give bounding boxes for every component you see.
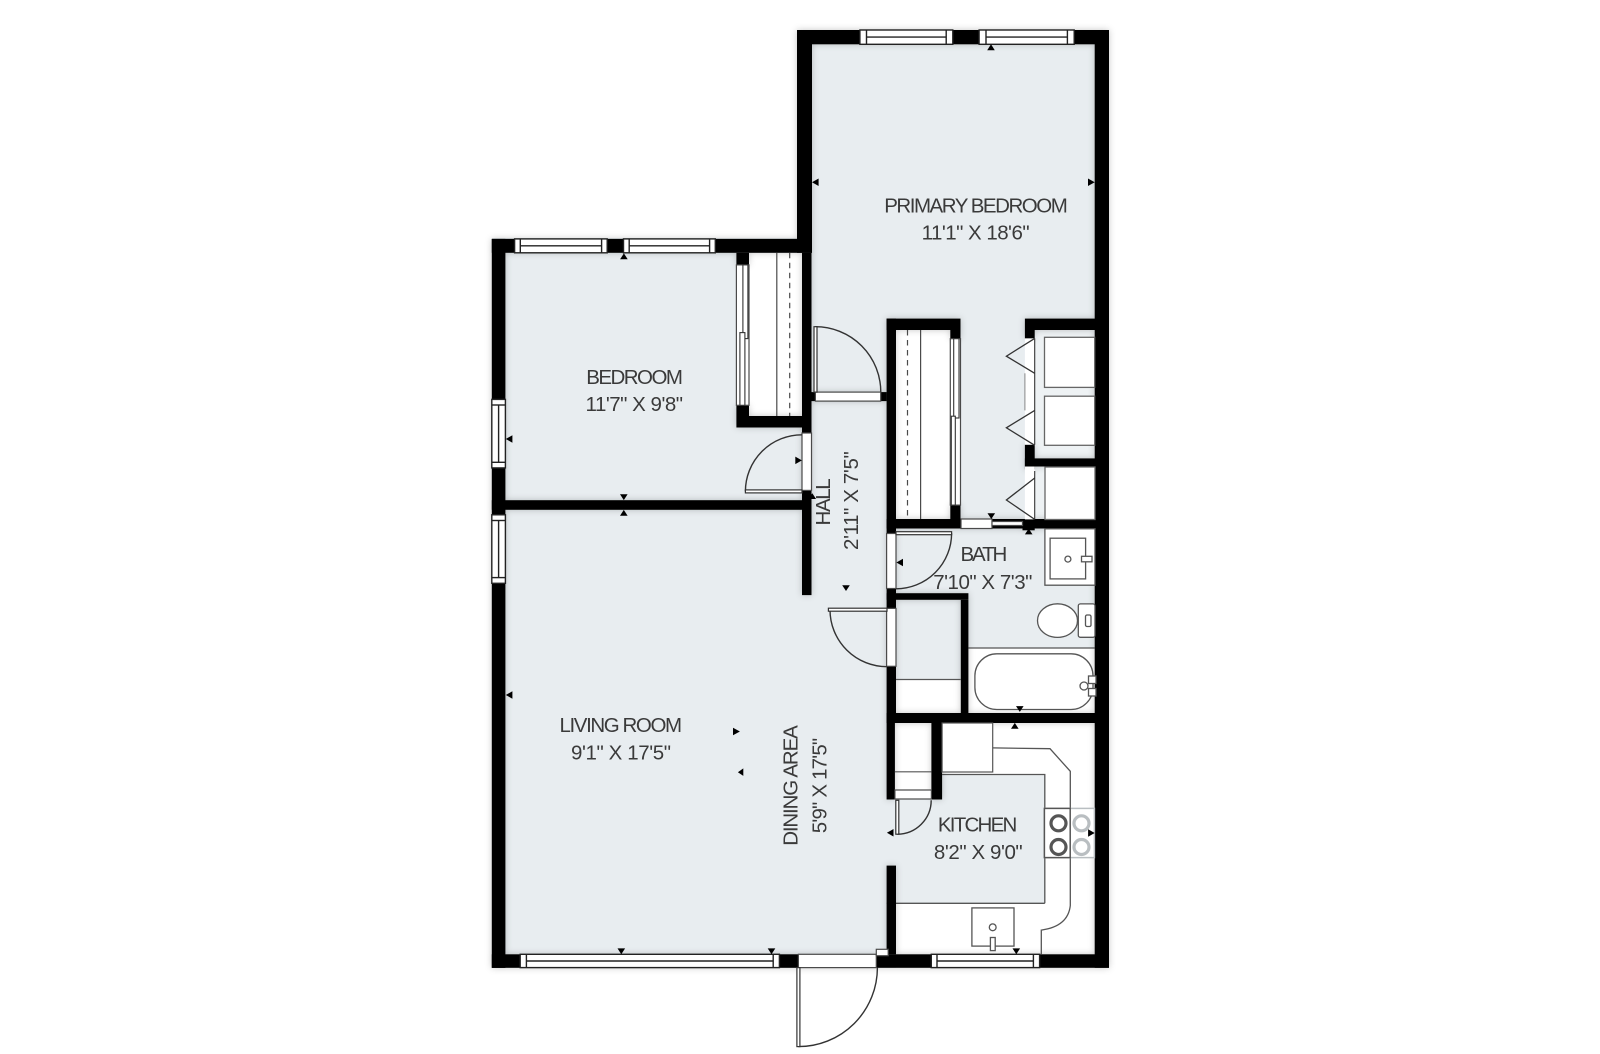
- svg-text:KITCHEN: KITCHEN: [938, 813, 1018, 836]
- svg-text:LIVING ROOM: LIVING ROOM: [560, 714, 683, 737]
- svg-text:5'9" X 17'5": 5'9" X 17'5": [809, 738, 832, 833]
- svg-text:11'7" X 9'8": 11'7" X 9'8": [586, 393, 684, 416]
- svg-text:DINING AREA: DINING AREA: [780, 725, 803, 846]
- svg-text:HALL: HALL: [812, 478, 835, 525]
- svg-text:BATH: BATH: [960, 543, 1007, 566]
- svg-text:11'1" X 18'6": 11'1" X 18'6": [922, 222, 1030, 245]
- svg-text:2'11" X 7'5": 2'11" X 7'5": [840, 451, 863, 550]
- svg-text:7'10" X 7'3": 7'10" X 7'3": [933, 571, 1032, 594]
- svg-text:9'1" X 17'5": 9'1" X 17'5": [571, 742, 671, 765]
- svg-text:BEDROOM: BEDROOM: [586, 366, 683, 389]
- svg-text:8'2" X 9'0": 8'2" X 9'0": [934, 841, 1023, 864]
- svg-text:PRIMARY BEDROOM: PRIMARY BEDROOM: [884, 195, 1068, 218]
